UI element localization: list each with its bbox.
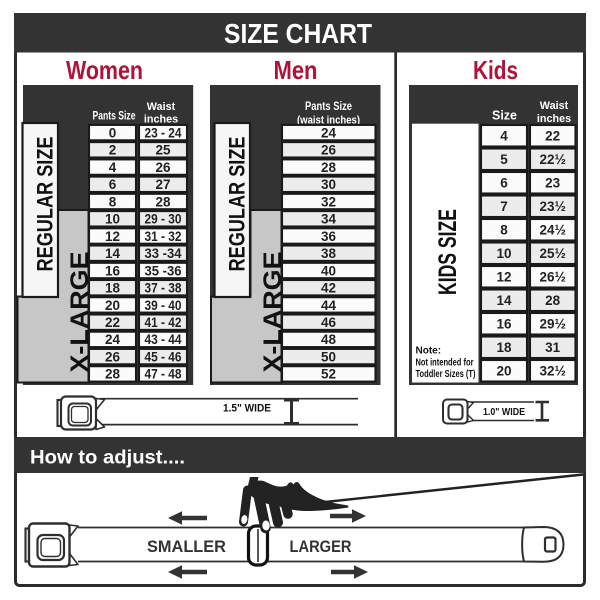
svg-text:26½: 26½: [540, 270, 566, 285]
svg-text:22: 22: [545, 129, 560, 144]
svg-text:6: 6: [109, 177, 117, 192]
svg-text:37 - 38: 37 - 38: [145, 281, 182, 296]
svg-text:Toddler Sizes (T): Toddler Sizes (T): [416, 369, 476, 380]
svg-text:5: 5: [500, 152, 508, 167]
svg-text:47 - 48: 47 - 48: [145, 367, 182, 382]
svg-text:SIZE CHART: SIZE CHART: [224, 18, 372, 49]
svg-text:18: 18: [496, 340, 512, 355]
svg-text:4: 4: [109, 160, 117, 175]
svg-text:29½: 29½: [540, 317, 566, 332]
svg-text:8: 8: [109, 194, 117, 209]
svg-text:23: 23: [545, 176, 561, 191]
svg-text:20: 20: [105, 298, 120, 313]
svg-text:Women: Women: [66, 55, 143, 85]
svg-text:28: 28: [155, 194, 171, 209]
svg-text:KIDS SIZE: KIDS SIZE: [434, 209, 462, 295]
svg-text:22½: 22½: [540, 152, 566, 167]
svg-text:8: 8: [500, 223, 508, 238]
svg-text:30: 30: [321, 177, 336, 192]
svg-text:26: 26: [321, 143, 337, 158]
svg-text:14: 14: [105, 246, 121, 261]
svg-text:32½: 32½: [540, 364, 566, 379]
svg-text:6: 6: [500, 176, 508, 191]
svg-text:23½: 23½: [540, 199, 566, 214]
svg-text:Men: Men: [274, 55, 318, 85]
svg-text:Waist: Waist: [147, 101, 176, 113]
svg-text:10: 10: [496, 246, 511, 261]
svg-text:29 - 30: 29 - 30: [145, 212, 182, 227]
svg-text:35 -36: 35 -36: [145, 263, 182, 278]
svg-text:How to adjust....: How to adjust....: [30, 447, 185, 469]
svg-text:1.0" WIDE: 1.0" WIDE: [483, 406, 525, 418]
svg-text:50: 50: [321, 350, 336, 365]
svg-text:52: 52: [321, 367, 336, 382]
svg-text:43 - 44: 43 - 44: [145, 332, 182, 347]
svg-text:0: 0: [109, 125, 117, 140]
svg-text:Kids: Kids: [473, 55, 518, 85]
svg-text:23 - 24: 23 - 24: [145, 125, 182, 140]
svg-text:12: 12: [105, 229, 120, 244]
svg-text:16: 16: [105, 263, 121, 278]
svg-text:32: 32: [321, 194, 336, 209]
svg-text:10: 10: [105, 212, 120, 227]
svg-text:41 - 42: 41 - 42: [145, 315, 182, 330]
svg-text:31: 31: [545, 340, 561, 355]
svg-text:12: 12: [496, 270, 511, 285]
svg-text:X-LARGE: X-LARGE: [66, 252, 94, 373]
svg-text:44: 44: [321, 298, 337, 313]
svg-text:45 - 46: 45 - 46: [145, 350, 182, 365]
svg-text:40: 40: [321, 263, 336, 278]
svg-text:2: 2: [109, 143, 117, 158]
svg-text:46: 46: [321, 315, 337, 330]
svg-text:LARGER: LARGER: [290, 537, 352, 556]
svg-text:Pants Size: Pants Size: [305, 101, 352, 113]
svg-text:X-LARGE: X-LARGE: [259, 252, 287, 373]
svg-text:4: 4: [500, 129, 508, 144]
svg-text:REGULAR SIZE: REGULAR SIZE: [225, 137, 250, 272]
svg-text:Not intended for: Not intended for: [416, 358, 474, 369]
svg-text:48: 48: [321, 332, 337, 347]
svg-text:24½: 24½: [540, 223, 566, 238]
svg-text:28: 28: [321, 160, 337, 175]
svg-text:18: 18: [105, 281, 121, 296]
svg-text:REGULAR SIZE: REGULAR SIZE: [33, 137, 58, 272]
svg-text:31 - 32: 31 - 32: [145, 229, 182, 244]
svg-text:24: 24: [321, 125, 337, 140]
svg-text:22: 22: [105, 315, 120, 330]
svg-text:26: 26: [155, 160, 171, 175]
svg-text:Waist: Waist: [540, 100, 569, 112]
svg-text:25½: 25½: [540, 246, 566, 261]
svg-text:34: 34: [321, 212, 337, 227]
svg-text:36: 36: [321, 229, 337, 244]
svg-text:Size: Size: [492, 109, 517, 123]
svg-text:42: 42: [321, 281, 336, 296]
svg-text:20: 20: [496, 364, 511, 379]
svg-text:16: 16: [496, 317, 512, 332]
svg-text:38: 38: [321, 246, 337, 261]
svg-text:25: 25: [155, 143, 171, 158]
svg-text:24: 24: [105, 332, 121, 347]
svg-text:7: 7: [500, 199, 508, 214]
svg-text:28: 28: [105, 367, 121, 382]
svg-text:inches: inches: [537, 113, 571, 125]
svg-text:14: 14: [496, 293, 512, 308]
svg-text:28: 28: [545, 293, 561, 308]
svg-text:1.5" WIDE: 1.5" WIDE: [223, 403, 271, 415]
svg-text:33 -34: 33 -34: [145, 246, 182, 261]
svg-text:Note:: Note:: [416, 346, 442, 357]
svg-text:39 - 40: 39 - 40: [145, 298, 182, 313]
svg-text:inches: inches: [144, 114, 178, 126]
svg-text:Pants Size: Pants Size: [93, 111, 136, 123]
svg-text:SMALLER: SMALLER: [147, 537, 226, 556]
svg-text:26: 26: [105, 350, 121, 365]
svg-text:27: 27: [155, 177, 170, 192]
